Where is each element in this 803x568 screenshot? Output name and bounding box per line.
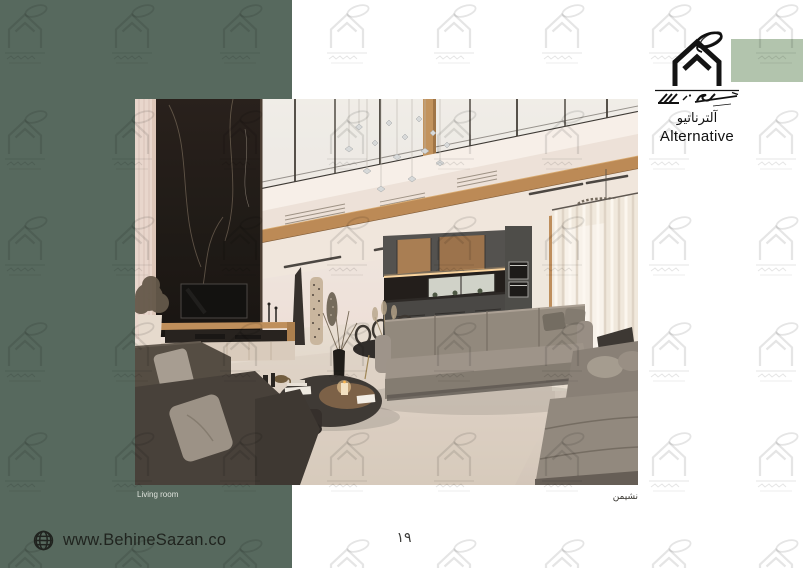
house-logo-icon — [659, 28, 735, 86]
footer: www.BehineSazan.co — [32, 529, 226, 552]
house-watermark-icon — [535, 537, 589, 568]
website-link[interactable]: www.BehineSazan.co — [63, 531, 226, 550]
house-watermark-icon — [642, 537, 696, 568]
house-watermark-icon — [749, 214, 803, 278]
globe-icon — [32, 529, 55, 552]
brand-name-fa: آلترناتیو — [627, 110, 767, 126]
house-watermark-icon — [642, 320, 696, 384]
house-watermark-icon — [320, 2, 374, 66]
page-number: ۱۹ — [354, 529, 454, 546]
house-watermark-icon — [749, 320, 803, 384]
house-watermark-icon — [642, 430, 696, 494]
interior-render-image — [135, 99, 638, 485]
brand-name-en: Alternative — [627, 128, 767, 145]
catalog-page: آلترناتیو Alternative Living room نشیمن … — [0, 0, 803, 568]
photo-caption-fa: نشیمن — [538, 491, 638, 502]
brand-signature-icon — [653, 88, 741, 108]
house-watermark-icon — [749, 537, 803, 568]
house-watermark-icon — [535, 2, 589, 66]
house-watermark-icon — [642, 214, 696, 278]
photo-caption-en: Living room — [137, 490, 178, 499]
house-watermark-icon — [427, 2, 481, 66]
brand-block: آلترناتیو Alternative — [627, 28, 767, 145]
living-room-photo — [135, 99, 638, 485]
house-watermark-icon — [749, 430, 803, 494]
